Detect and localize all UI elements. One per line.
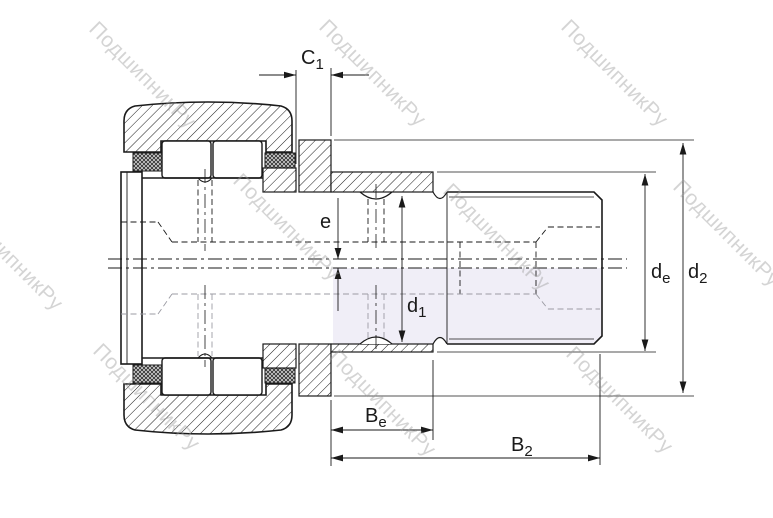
stud-lower-tint (333, 268, 602, 344)
label-e: e (320, 211, 331, 233)
cam-follower-drawing: C1 e d1 de d2 Be B2 ПодшипникРу Подшипни… (0, 0, 773, 518)
technical-drawing-canvas: C1 e d1 de d2 Be B2 ПодшипникРу Подшипни… (0, 0, 773, 518)
